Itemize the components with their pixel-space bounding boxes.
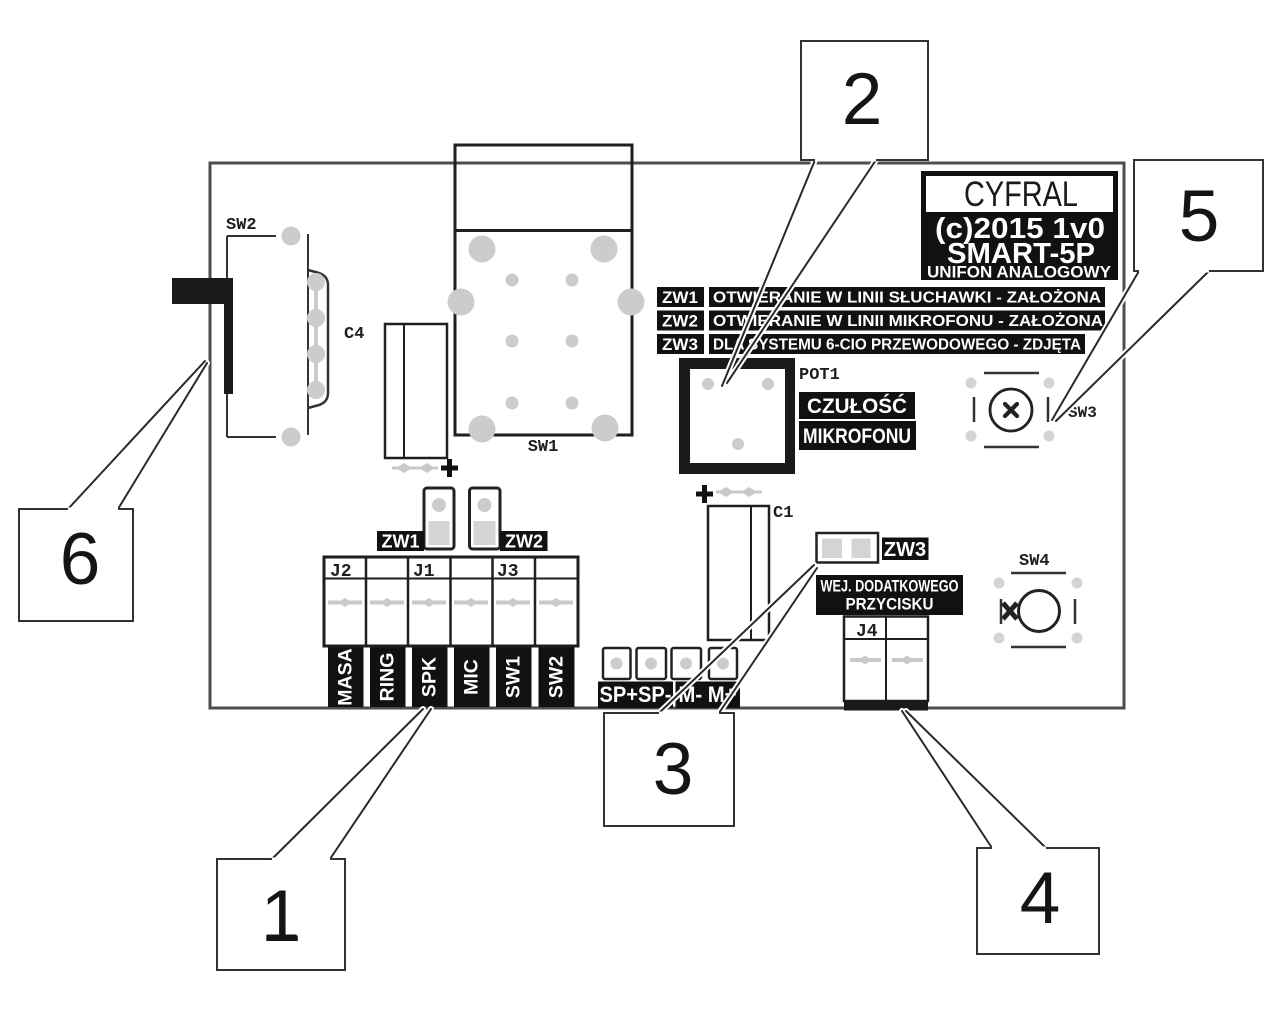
svg-text:UNIFON ANALOGOWY: UNIFON ANALOGOWY: [927, 264, 1111, 282]
svg-text:ZW2: ZW2: [662, 312, 698, 331]
svg-text:1: 1: [261, 876, 302, 957]
svg-text:SPK: SPK: [419, 657, 441, 697]
svg-text:C4: C4: [344, 325, 364, 344]
svg-text:SP+SP-: SP+SP-: [600, 682, 672, 707]
svg-text:J3: J3: [497, 562, 519, 582]
svg-text:CZUŁOŚĆ: CZUŁOŚĆ: [807, 394, 907, 418]
svg-text:SW4: SW4: [1019, 552, 1050, 571]
svg-text:C1: C1: [773, 504, 793, 523]
svg-text:PRZYCISKU: PRZYCISKU: [846, 596, 934, 614]
svg-text:RING: RING: [377, 653, 399, 702]
svg-text:J1: J1: [413, 562, 435, 582]
svg-text:J2: J2: [330, 562, 352, 582]
svg-text:CYFRAL: CYFRAL: [964, 175, 1078, 214]
svg-text:SW1: SW1: [528, 438, 559, 457]
svg-text:DLA SYSTEMU 6-CIO PRZEWODOWEGO: DLA SYSTEMU 6-CIO PRZEWODOWEGO - ZDJĘTA: [713, 337, 1081, 354]
svg-text:2: 2: [842, 59, 883, 140]
svg-text:ZW1: ZW1: [662, 288, 698, 307]
svg-text:OTWIERANIE W LINII SŁUCHAWKI -: OTWIERANIE W LINII SŁUCHAWKI - ZAŁOŻONA: [713, 289, 1101, 307]
svg-text:3: 3: [653, 729, 694, 810]
svg-text:SW2: SW2: [546, 656, 568, 698]
svg-text:ZW3: ZW3: [662, 335, 698, 354]
svg-text:SW2: SW2: [226, 216, 257, 235]
svg-text:4: 4: [1020, 858, 1061, 939]
svg-text:SW1: SW1: [503, 656, 525, 698]
svg-text:MIC: MIC: [461, 659, 483, 695]
svg-text:ZW2: ZW2: [505, 532, 543, 552]
svg-text:MASA: MASA: [335, 648, 357, 705]
svg-text:ZW3: ZW3: [884, 539, 926, 561]
svg-text:J4: J4: [856, 622, 878, 642]
svg-text:ZW1: ZW1: [382, 532, 420, 552]
svg-text:6: 6: [60, 519, 101, 600]
svg-text:POT1: POT1: [799, 366, 840, 385]
svg-text:MIKROFONU: MIKROFONU: [803, 425, 911, 448]
svg-text:WEJ. DODATKOWEGO: WEJ. DODATKOWEGO: [821, 578, 959, 596]
svg-text:5: 5: [1179, 176, 1220, 257]
